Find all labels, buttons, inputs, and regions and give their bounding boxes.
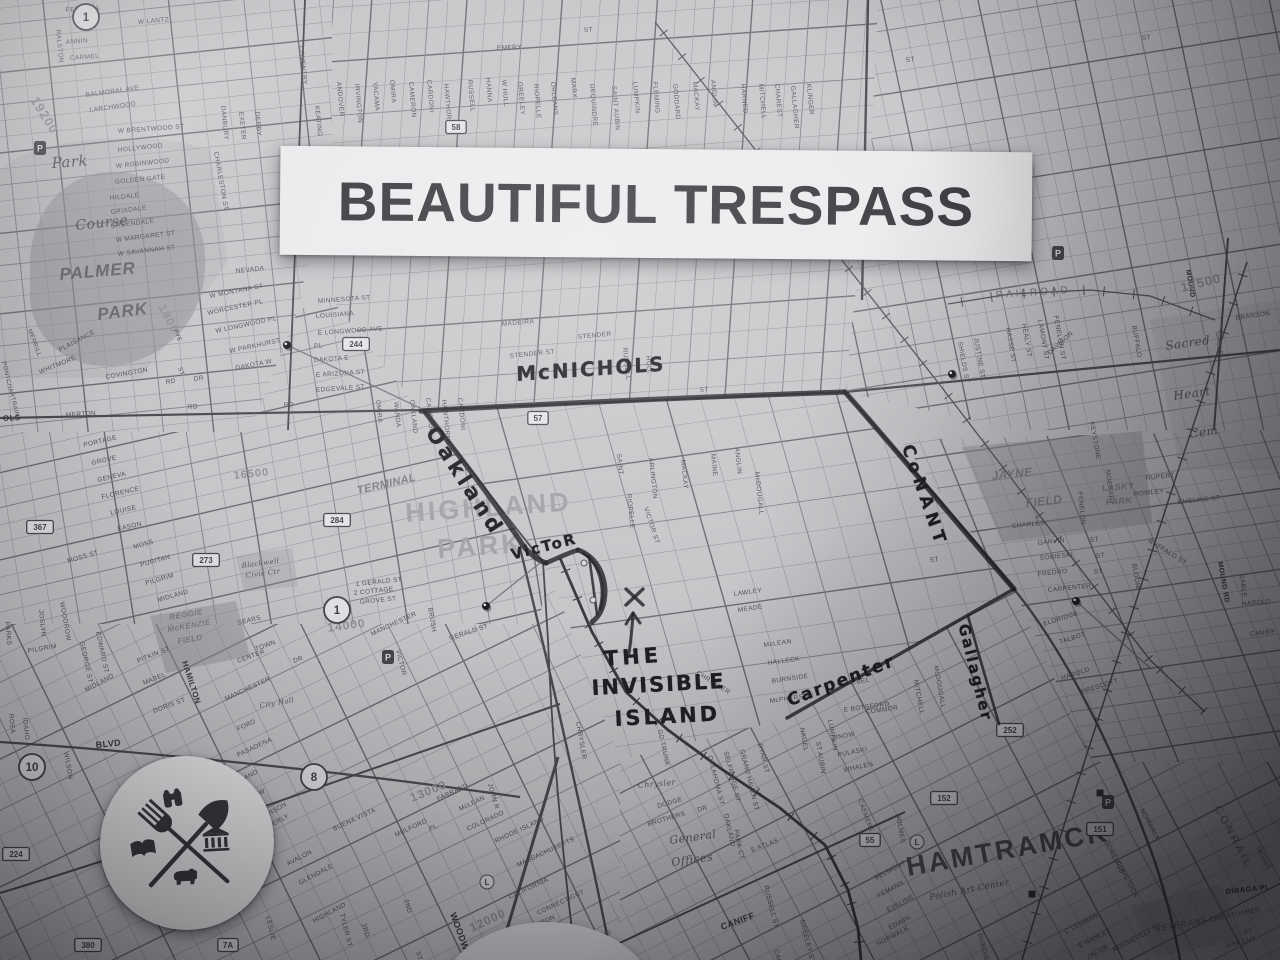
building-square [1097, 790, 1104, 797]
parking-letter: P [37, 144, 43, 154]
parking-marker: P [1102, 795, 1114, 809]
route-shield-box: 151 [1087, 823, 1114, 836]
parking-marker: P [382, 650, 394, 664]
pin-head [482, 602, 490, 610]
route-shield-box: 252 [997, 724, 1024, 737]
pin-head [283, 341, 291, 349]
street-label: OLS [3, 413, 21, 423]
shield-number: 284 [330, 516, 344, 525]
annotated-map-photo: FERNHILLW LANTZANNINCARMELBALMORAL AVELA… [0, 0, 1280, 960]
local-marker-circle: L [480, 875, 494, 889]
shield-number: 7A [223, 941, 233, 950]
museum-icon [202, 826, 229, 852]
street-label: RD [284, 401, 295, 409]
route-shield-box: 380 [75, 939, 102, 952]
route-shield-circle: 1 [324, 597, 350, 623]
shield-number: 10 [26, 762, 39, 774]
shield-number: 273 [199, 556, 213, 565]
route-shield-box: 244 [343, 338, 370, 351]
pin-head [590, 597, 596, 603]
street-label: ST [699, 386, 709, 394]
binoculars-icon [162, 788, 183, 808]
street-label: PARK [1105, 495, 1133, 507]
shield-number: 58 [452, 123, 461, 132]
route-shield-box: 284 [324, 514, 351, 527]
shield-number: 244 [349, 340, 363, 349]
street-label: DR [193, 375, 204, 383]
bear-icon [173, 868, 197, 885]
street-label: RD [165, 378, 176, 386]
street-label: ST [1095, 552, 1105, 560]
book-icon [130, 838, 156, 858]
pin-head [1072, 597, 1080, 605]
pin-head [581, 560, 587, 566]
street-label: EMERY [497, 44, 523, 52]
route-shield-box: 55 [860, 834, 880, 847]
shield-number: 1 [83, 12, 90, 24]
street-label: ST [905, 56, 915, 64]
pin-head [948, 370, 956, 378]
parking-letter: P [385, 653, 391, 663]
route-shield-box: 367 [27, 521, 54, 534]
l-letter: L [485, 878, 490, 887]
street-label: ST [584, 26, 594, 34]
route-shield-box: 224 [3, 848, 30, 861]
route-shield-box: 7A [218, 939, 238, 952]
shield-number: 55 [866, 836, 875, 845]
route-shield-circle: 1 [73, 4, 99, 30]
route-shield-box: 57 [528, 412, 548, 425]
pin-highlight [1074, 599, 1077, 602]
title-banner: BEAUTIFUL TRESPASS [280, 146, 1033, 262]
route-shield-box: 58 [446, 121, 466, 134]
building-square [1029, 891, 1036, 898]
title-text: BEAUTIFUL TRESPASS [338, 169, 975, 239]
parking-marker: P [34, 141, 46, 155]
logo-sticker [100, 756, 274, 930]
street-label: RD [188, 403, 199, 411]
street-label: ST [1093, 568, 1103, 576]
local-marker-circle: L [910, 835, 924, 849]
shield-number: 8 [311, 772, 318, 784]
shield-number: 367 [33, 523, 47, 532]
route-shield-box: 152 [931, 792, 958, 805]
parking-marker: P [1052, 246, 1064, 260]
shield-number: 1 [334, 605, 341, 617]
street-label: PL [314, 342, 323, 350]
push-pin [590, 597, 596, 603]
l-letter: L [915, 838, 920, 847]
pin-highlight [950, 372, 953, 375]
pin-highlight [484, 604, 487, 607]
shield-number: 252 [1003, 726, 1017, 735]
route-shield-circle: 8 [301, 764, 327, 790]
handwritten-the: THE [603, 643, 663, 671]
street-label: ST [1089, 536, 1099, 544]
logo-emblem [100, 756, 274, 930]
route-shield-circle: 10 [19, 754, 45, 780]
shield-number: 380 [81, 941, 95, 950]
pin-highlight [285, 343, 288, 346]
parking-letter: P [1105, 798, 1111, 808]
parking-letter: P [1055, 249, 1061, 259]
route-shield-box: 273 [193, 554, 220, 567]
street-label: Park [50, 152, 88, 173]
push-pin [581, 560, 587, 566]
shield-number: 151 [1093, 825, 1107, 834]
shield-number: 224 [9, 850, 23, 859]
street-label: ST [1141, 34, 1151, 42]
shield-number: 152 [937, 794, 951, 803]
shield-number: 57 [534, 414, 543, 423]
street-label: ST [929, 556, 939, 564]
